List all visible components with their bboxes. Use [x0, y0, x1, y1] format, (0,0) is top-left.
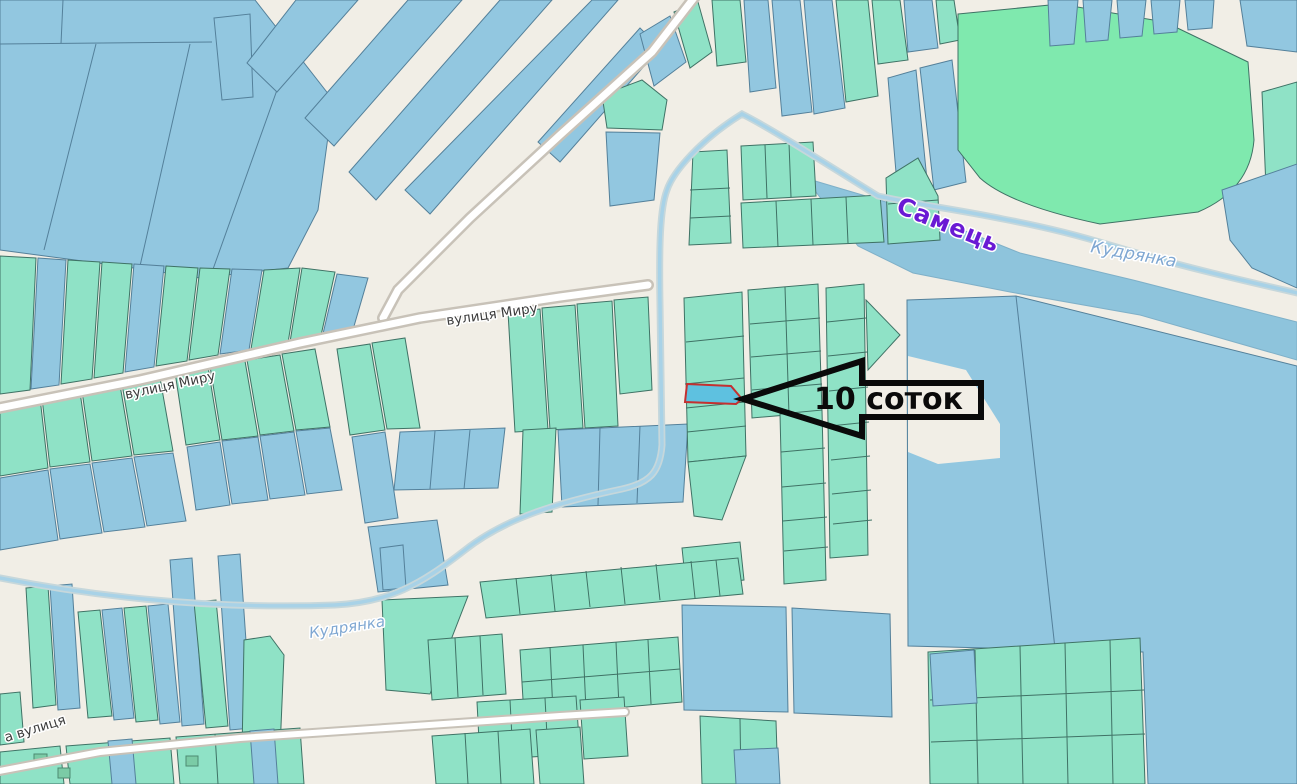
annotation-label: 10 соток	[814, 382, 963, 417]
map-canvas[interactable]: Самець Кудрянка Кудрянка вулиця Миру вул…	[0, 0, 1297, 784]
parcel-group-bottom-right	[928, 638, 1145, 784]
